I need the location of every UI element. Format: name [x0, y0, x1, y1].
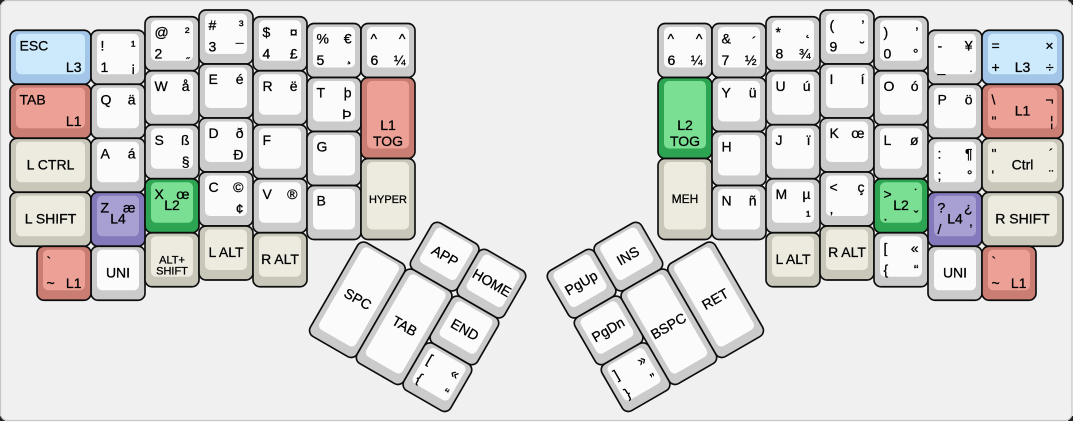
svg-text:<: < — [830, 179, 838, 195]
svg-text:L ALT: L ALT — [775, 251, 810, 267]
svg-text:L: L — [884, 132, 892, 148]
svg-text:ü: ü — [749, 85, 757, 101]
svg-text:é: é — [236, 71, 244, 87]
svg-text:TOG: TOG — [670, 133, 700, 149]
svg-text:×: × — [1045, 37, 1053, 53]
svg-text:N: N — [722, 193, 732, 209]
svg-text:~: ~ — [992, 275, 1000, 291]
svg-text:5: 5 — [317, 52, 325, 68]
svg-text:¾: ¾ — [799, 45, 811, 61]
svg-text:,: , — [830, 201, 834, 217]
svg-text:ö: ö — [965, 91, 973, 107]
svg-text:©: © — [233, 179, 244, 195]
svg-text:U: U — [776, 78, 786, 94]
svg-text:{: { — [884, 261, 889, 277]
svg-text:-: - — [938, 37, 943, 53]
svg-text:§: § — [182, 153, 190, 169]
svg-text:_: _ — [937, 59, 946, 75]
svg-text:&: & — [722, 31, 732, 47]
svg-text:9: 9 — [830, 39, 838, 55]
svg-text:~: ~ — [47, 275, 55, 291]
svg-text:^: ^ — [668, 31, 675, 47]
svg-text:!: ! — [101, 37, 105, 53]
svg-text:Þ: Þ — [342, 106, 351, 122]
svg-text:´: ´ — [1049, 145, 1054, 161]
svg-text:C: C — [209, 179, 219, 195]
svg-text:¹: ¹ — [806, 207, 811, 223]
svg-text:`: ` — [992, 253, 997, 269]
svg-text:>: > — [884, 186, 892, 202]
svg-text:®: ® — [287, 186, 298, 202]
svg-text:MEH: MEH — [672, 192, 699, 206]
svg-text:ESC: ESC — [20, 37, 49, 53]
svg-text:": " — [992, 145, 997, 161]
svg-text:’: ’ — [915, 24, 918, 40]
svg-text:V: V — [263, 186, 273, 202]
svg-text:L1: L1 — [66, 113, 82, 129]
svg-text:ä: ä — [128, 91, 136, 107]
svg-text:M: M — [776, 186, 788, 202]
svg-text:SHIFT: SHIFT — [156, 265, 188, 277]
svg-text:¼: ¼ — [691, 52, 703, 68]
svg-text:W: W — [155, 78, 169, 94]
svg-text:HYPER: HYPER — [369, 194, 407, 206]
svg-text:¦: ¦ — [1050, 113, 1054, 129]
svg-text:UNI: UNI — [106, 264, 130, 280]
svg-text:Ctrl: Ctrl — [1012, 156, 1034, 172]
svg-text:¨: ¨ — [1049, 167, 1054, 183]
svg-text:¢: ¢ — [236, 201, 244, 217]
svg-text:å: å — [182, 78, 190, 94]
svg-text:(: ( — [830, 17, 835, 33]
svg-text:¯: ¯ — [235, 41, 244, 57]
svg-text:°: ° — [967, 167, 973, 183]
svg-text:¼: ¼ — [394, 52, 406, 68]
svg-text:T: T — [317, 85, 326, 101]
svg-text:%: % — [317, 31, 329, 47]
svg-text:$: $ — [263, 24, 271, 40]
svg-text:6: 6 — [668, 52, 676, 68]
svg-text:F: F — [263, 132, 272, 148]
svg-text:B: B — [317, 193, 326, 209]
svg-text:): ) — [884, 24, 889, 40]
svg-text:O: O — [884, 78, 895, 94]
svg-text:á: á — [128, 145, 136, 161]
svg-text:œ: œ — [851, 125, 864, 141]
svg-text:L1: L1 — [1015, 102, 1031, 118]
svg-text:÷: ÷ — [1046, 59, 1054, 75]
svg-text:’: ’ — [969, 221, 972, 237]
svg-text:3: 3 — [209, 39, 217, 55]
svg-text:L ALT: L ALT — [208, 244, 243, 260]
svg-text:L3: L3 — [66, 59, 82, 75]
svg-text:˛: ˛ — [806, 22, 811, 38]
svg-text:[: [ — [884, 240, 888, 256]
svg-text:ï: ï — [807, 132, 811, 148]
svg-text:L1: L1 — [66, 275, 82, 291]
svg-text:7: 7 — [722, 52, 730, 68]
svg-text:?: ? — [938, 199, 946, 215]
svg-text:P: P — [938, 91, 947, 107]
svg-text:K: K — [830, 125, 840, 141]
svg-text:ð: ð — [236, 125, 244, 141]
svg-text:’: ’ — [861, 17, 864, 33]
svg-text:4: 4 — [263, 45, 271, 61]
svg-text:²: ² — [185, 24, 190, 40]
svg-text:´: ´ — [752, 34, 757, 50]
svg-text:L2: L2 — [677, 117, 693, 133]
svg-text:R ALT: R ALT — [261, 251, 299, 267]
svg-text:\: \ — [992, 91, 996, 107]
svg-text:L SHIFT: L SHIFT — [25, 210, 77, 226]
svg-text:G: G — [317, 139, 328, 155]
svg-text:¿: ¿ — [964, 199, 973, 215]
svg-text:Đ: Đ — [233, 147, 243, 163]
svg-text:H: H — [722, 139, 732, 155]
svg-text:¹: ¹ — [131, 37, 136, 53]
svg-text:2: 2 — [155, 45, 163, 61]
svg-text:1: 1 — [101, 59, 109, 75]
svg-text:J: J — [776, 132, 783, 148]
svg-text:ø: ø — [910, 132, 919, 148]
svg-text:«: « — [911, 240, 919, 256]
svg-text:˙: ˙ — [914, 186, 919, 202]
svg-text:S: S — [155, 132, 164, 148]
svg-text:½: ½ — [745, 52, 757, 68]
svg-text:^: ^ — [371, 31, 378, 47]
svg-text:@: @ — [155, 24, 169, 40]
svg-text:ó: ó — [911, 78, 919, 94]
svg-text:£: £ — [290, 45, 298, 61]
svg-text:¤: ¤ — [290, 24, 298, 40]
svg-text:L3: L3 — [1015, 59, 1031, 75]
svg-text:L1: L1 — [380, 117, 396, 133]
svg-text:µ: µ — [802, 186, 810, 202]
svg-text:^: ^ — [399, 31, 406, 47]
svg-text:+: + — [992, 59, 1000, 75]
svg-text:E: E — [209, 71, 218, 87]
svg-text:ç: ç — [858, 179, 865, 195]
svg-text:^: ^ — [696, 31, 703, 47]
svg-text:I: I — [830, 71, 834, 87]
svg-text:D: D — [209, 125, 219, 141]
svg-text:í: í — [861, 71, 865, 87]
svg-text:L4: L4 — [110, 210, 126, 226]
svg-text:UNI: UNI — [943, 264, 967, 280]
svg-text:¡: ¡ — [131, 59, 136, 75]
svg-text:L4: L4 — [947, 210, 963, 226]
svg-text:ë: ë — [290, 78, 298, 94]
svg-text:þ: þ — [344, 85, 352, 101]
svg-text:': ' — [992, 167, 995, 183]
svg-text:=: = — [992, 37, 1000, 53]
svg-text:R ALT: R ALT — [828, 244, 866, 260]
svg-text:¸: ¸ — [347, 48, 352, 64]
svg-text:X: X — [155, 186, 165, 202]
svg-text:;: ; — [938, 167, 942, 183]
svg-text:L2: L2 — [164, 197, 180, 213]
svg-text:˘: ˘ — [859, 39, 865, 55]
svg-text:.: . — [969, 63, 972, 75]
svg-text:Q: Q — [101, 91, 112, 107]
svg-text:ˇ: ˇ — [914, 207, 919, 223]
svg-text:L1: L1 — [1011, 275, 1027, 291]
svg-text:L CTRL: L CTRL — [27, 156, 75, 172]
svg-text:ú: ú — [803, 78, 811, 94]
svg-text:ñ: ñ — [749, 193, 757, 209]
svg-text:/: / — [938, 221, 942, 237]
svg-text:³: ³ — [239, 17, 244, 33]
svg-text:L2: L2 — [893, 197, 909, 213]
svg-text:ß: ß — [181, 132, 190, 148]
svg-text:R: R — [263, 78, 273, 94]
svg-text::: : — [938, 145, 942, 161]
svg-text:¬: ¬ — [1045, 91, 1053, 107]
svg-text:¥: ¥ — [964, 37, 973, 53]
svg-text:#: # — [209, 17, 217, 33]
svg-text:¶: ¶ — [965, 145, 973, 161]
svg-text:0: 0 — [884, 45, 892, 61]
svg-text:`: ` — [47, 253, 52, 269]
svg-text:8: 8 — [776, 45, 784, 61]
svg-text:*: * — [776, 24, 782, 40]
svg-text:6: 6 — [371, 52, 379, 68]
svg-text:°: ° — [913, 45, 919, 61]
svg-text:TOG: TOG — [373, 133, 403, 149]
svg-text:“: “ — [914, 261, 919, 277]
svg-text:A: A — [101, 145, 111, 161]
svg-text:R SHIFT: R SHIFT — [995, 210, 1050, 226]
svg-text:€: € — [344, 31, 352, 47]
svg-text:Y: Y — [722, 85, 732, 101]
svg-text:.: . — [884, 207, 888, 223]
svg-text:TAB: TAB — [20, 91, 46, 107]
svg-text:": " — [992, 113, 997, 129]
svg-text:Z: Z — [101, 199, 110, 215]
